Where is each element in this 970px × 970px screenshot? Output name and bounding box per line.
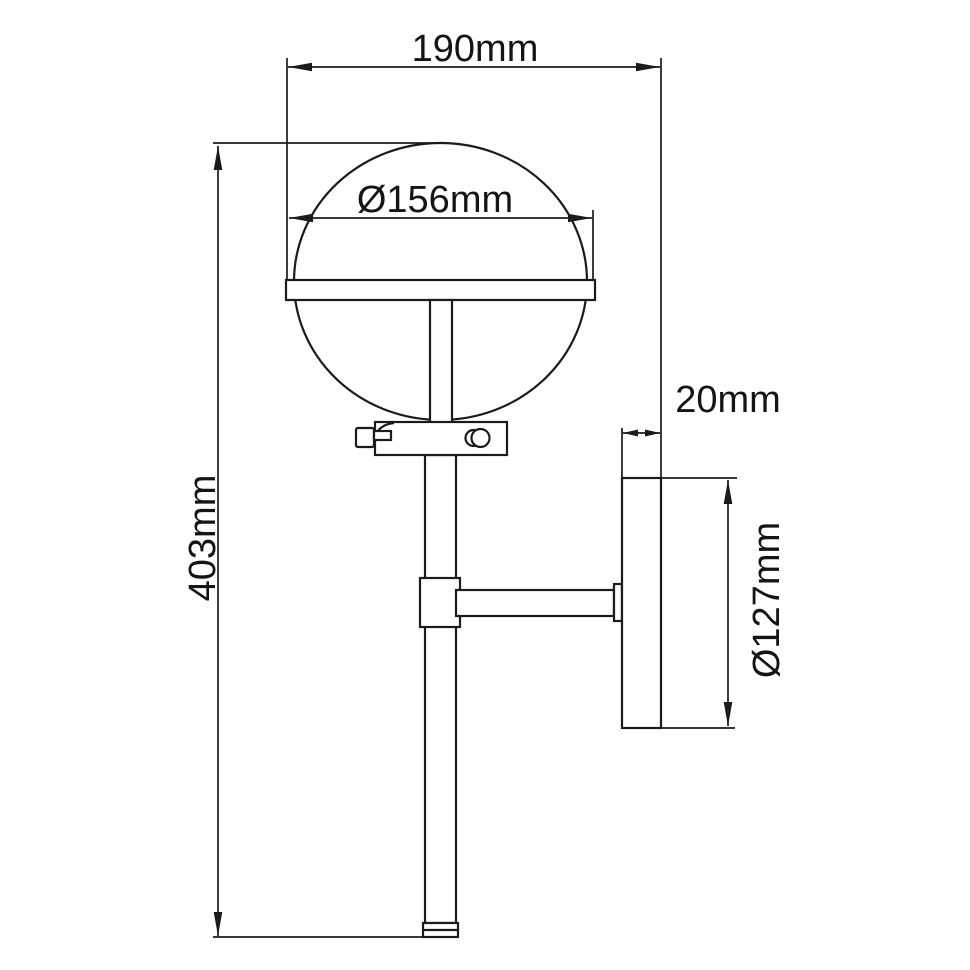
- technical-drawing: 190mm Ø156mm 403mm 20mm: [0, 0, 970, 970]
- dimension-backplate-depth: 20mm: [622, 379, 781, 478]
- dimension-backplate-diameter: Ø127mm: [661, 478, 788, 728]
- arrowhead-left: [289, 214, 313, 223]
- arrowhead-bottom: [214, 912, 223, 936]
- wall-light-fixture: [286, 143, 661, 937]
- dimension-label-backplate-diameter: Ø127mm: [746, 522, 788, 678]
- dimension-label-backplate-depth: 20mm: [675, 379, 781, 421]
- dimension-label-projection: 190mm: [412, 28, 539, 70]
- arrowhead-right: [645, 430, 660, 437]
- arrowhead-bottom: [724, 702, 733, 726]
- screw-detail-front: [472, 429, 490, 447]
- upper-stem: [430, 300, 452, 423]
- wall-backplate: [622, 478, 661, 728]
- arrowhead-left: [623, 430, 638, 437]
- arrowhead-top: [724, 480, 733, 504]
- dimension-label-globe-diameter: Ø156mm: [357, 179, 513, 221]
- knob-shaft: [374, 431, 391, 440]
- arrowhead-right: [568, 214, 592, 223]
- arrowhead-left: [288, 63, 312, 72]
- adjustment-knob: [356, 428, 374, 447]
- arrowhead-right: [636, 63, 660, 72]
- arm-flange: [614, 584, 622, 621]
- stem-collar: [420, 578, 460, 627]
- arrowhead-top: [214, 146, 223, 170]
- dimension-label-height: 403mm: [182, 475, 224, 602]
- dimension-drawing-svg: 190mm Ø156mm 403mm 20mm: [0, 0, 970, 970]
- globe-band: [286, 280, 595, 300]
- lower-stem: [425, 455, 456, 923]
- wall-arm: [456, 590, 614, 616]
